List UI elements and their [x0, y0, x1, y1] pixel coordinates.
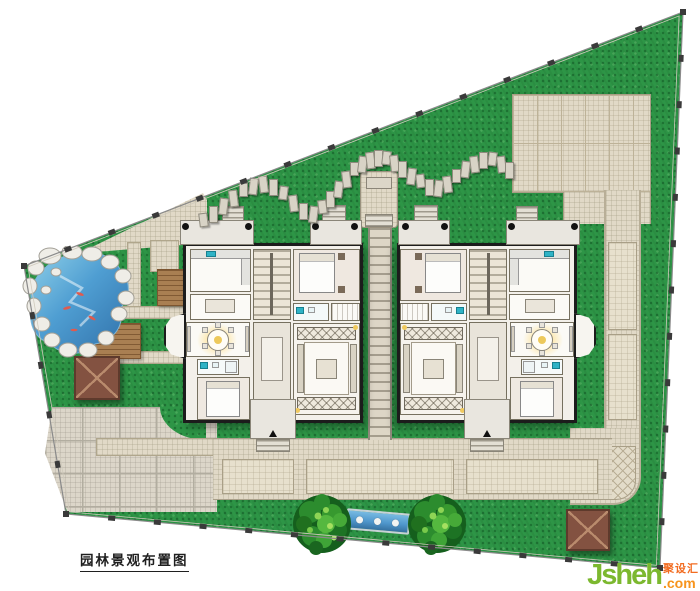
dining-lamp — [214, 336, 222, 344]
dining-chair — [526, 327, 532, 333]
porch-column — [245, 223, 252, 230]
coffee-table — [423, 359, 444, 379]
east-walk-panel-1 — [608, 242, 637, 330]
pergola-walk — [368, 228, 392, 440]
closet — [331, 303, 360, 321]
porch-column — [402, 223, 409, 230]
kitchen-counter — [191, 250, 250, 259]
nightstand — [338, 286, 345, 293]
nightstand — [338, 253, 345, 260]
south-entry-steps — [470, 439, 504, 452]
watermark-site-name: Jsheh — [587, 561, 661, 590]
toilet — [200, 362, 208, 369]
kitchen-porch — [180, 220, 254, 245]
court-steps — [365, 214, 393, 227]
villa-west — [166, 203, 366, 453]
breakfast-table — [205, 299, 235, 313]
porch-column — [441, 223, 448, 230]
kitchen-sink — [544, 251, 554, 257]
porch-column — [508, 223, 515, 230]
kitchen-counter — [510, 250, 569, 259]
watermark-logo: Jsheh 聚设汇 .com — [587, 561, 699, 590]
basin — [212, 362, 219, 368]
toilet — [296, 307, 304, 314]
watermark-cn-name: 聚设汇 — [663, 564, 699, 575]
south-entry-steps — [256, 439, 290, 452]
kitchen-counter-side — [510, 259, 519, 285]
stepping-stone — [209, 206, 218, 223]
basin — [541, 362, 548, 368]
stepping-stone — [228, 190, 239, 208]
hall-landing — [477, 337, 499, 381]
stepping-pad — [392, 519, 400, 527]
porch-column — [571, 223, 578, 230]
nightstand — [415, 286, 422, 293]
kitchen-sink — [206, 251, 216, 257]
dining-chair — [202, 327, 208, 333]
promenade-panel-3 — [466, 459, 598, 494]
stair-rail — [270, 253, 273, 315]
dining-chair — [552, 327, 558, 333]
court-planter — [366, 177, 392, 189]
sofa — [403, 344, 410, 393]
stepping-stone — [198, 213, 209, 228]
carpet-border-bottom — [404, 397, 463, 410]
dining-chair — [228, 327, 234, 333]
shower — [523, 361, 535, 373]
shower — [225, 361, 237, 373]
stair-rail — [487, 253, 490, 315]
toilet — [552, 362, 560, 369]
toilet — [456, 307, 464, 314]
stepping-pad — [374, 518, 382, 526]
stepping-pad — [356, 516, 364, 524]
bed-pillows — [426, 254, 460, 262]
wood-deck — [87, 323, 141, 359]
stepping-stone — [299, 203, 308, 220]
dining-chair — [215, 322, 221, 328]
stepping-stone — [479, 152, 488, 169]
bed-pillows — [207, 382, 239, 389]
carpet-border-bottom — [297, 397, 356, 410]
stepping-stone — [239, 183, 248, 197]
kitchen-porch — [506, 220, 580, 245]
stepping-stone — [269, 179, 278, 196]
terrace-steps — [414, 205, 438, 221]
nightstand — [415, 253, 422, 260]
villa-east — [394, 203, 594, 453]
carpet-border-top — [404, 327, 463, 340]
bay-window — [574, 313, 596, 359]
sofa — [297, 344, 304, 393]
bed-pillows — [521, 382, 553, 389]
porch-column — [182, 223, 189, 230]
promenade-panel-1 — [222, 459, 294, 494]
breakfast-table — [525, 299, 555, 313]
carpet-border-top — [297, 327, 356, 340]
closet — [400, 303, 429, 321]
dining-chair — [552, 343, 558, 349]
hall-landing — [261, 337, 283, 381]
basin — [308, 307, 315, 313]
dining-chair — [539, 322, 545, 328]
promenade-panel-2 — [306, 459, 454, 494]
watermark-domain-suffix: .com — [663, 576, 696, 590]
dining-lamp — [538, 336, 546, 344]
basin — [445, 307, 452, 313]
sideboard — [245, 326, 249, 352]
bay-window — [164, 313, 186, 359]
stepping-stone — [288, 195, 299, 213]
floor-lamp — [353, 325, 358, 330]
stepping-stone — [505, 162, 514, 179]
sideboard — [569, 326, 573, 352]
coffee-table — [316, 359, 337, 379]
sofa — [350, 344, 357, 393]
gazebo-west — [74, 356, 120, 400]
garden-path-vertical — [127, 242, 141, 316]
site-plan-canvas: 园林景观布置图 Jsheh 聚设汇 .com — [0, 0, 700, 591]
bed-pillows — [300, 254, 334, 262]
stepping-stone — [258, 176, 269, 194]
sideboard — [511, 326, 515, 352]
stepping-stone — [278, 186, 289, 201]
east-walk-panel-2 — [608, 334, 637, 420]
porch-column — [351, 223, 358, 230]
sideboard — [187, 326, 191, 352]
floor-lamp — [402, 325, 407, 330]
porch-steps — [516, 206, 538, 221]
gazebo-southeast — [566, 509, 610, 551]
kitchen-counter-side — [241, 259, 250, 285]
plaza-northeast — [512, 94, 651, 193]
porch-column — [312, 223, 319, 230]
drawing-title: 园林景观布置图 — [80, 549, 189, 572]
stepping-stone — [398, 161, 407, 178]
sofa — [456, 344, 463, 393]
dining-chair — [228, 343, 234, 349]
